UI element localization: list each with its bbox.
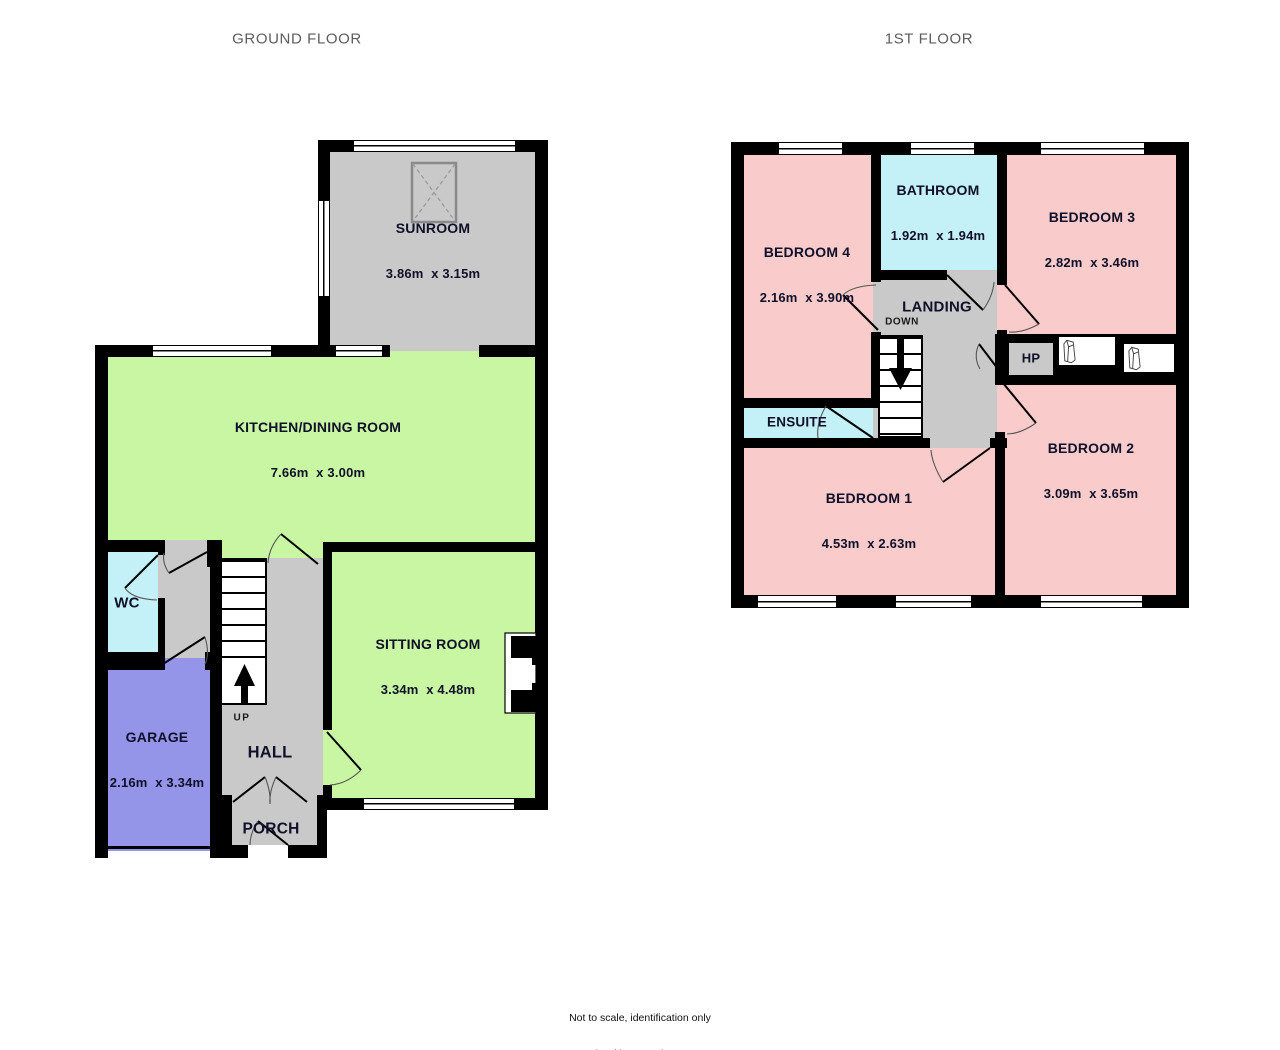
stair-steps bbox=[880, 337, 921, 436]
window bbox=[778, 142, 843, 155]
room-dims: 2.82m x 3.46m bbox=[1045, 255, 1140, 270]
stair-steps bbox=[222, 560, 265, 672]
wall-segment bbox=[323, 542, 548, 552]
room-name: BEDROOM 3 bbox=[1045, 210, 1140, 225]
garment-icon bbox=[1127, 345, 1142, 372]
room-label-bedroom2: BEDROOM 2 3.09m x 3.65m bbox=[1044, 411, 1139, 531]
room-name: PORCH bbox=[243, 822, 300, 837]
room-dims: 4.53m x 2.63m bbox=[822, 536, 917, 551]
room-dims: 3.34m x 4.48m bbox=[375, 682, 480, 697]
wall-segment bbox=[95, 652, 160, 670]
room-name: SITTING ROOM bbox=[375, 637, 480, 652]
window bbox=[1040, 595, 1143, 608]
room-label-sunroom: SUNROOM 3.86m x 3.15m bbox=[386, 191, 481, 311]
room-name: KITCHEN/DINING ROOM bbox=[235, 420, 401, 435]
wall-segment bbox=[95, 540, 163, 552]
disclaimer-line1: Not to scale, identification only bbox=[569, 1012, 711, 1024]
wall-segment bbox=[535, 140, 548, 810]
room-name: HALL bbox=[248, 746, 293, 761]
room-dims: 3.86m x 3.15m bbox=[386, 266, 481, 281]
room-name: WC bbox=[114, 596, 141, 611]
room-name: HP bbox=[1018, 351, 1045, 366]
wall-segment bbox=[997, 155, 1007, 285]
wall-segment bbox=[323, 542, 332, 730]
room-name: BEDROOM 1 bbox=[822, 491, 917, 506]
ground-floor-title: GROUND FLOOR bbox=[232, 31, 362, 48]
wall-segment bbox=[1176, 142, 1189, 608]
wall-segment bbox=[731, 438, 930, 448]
window bbox=[152, 345, 272, 357]
floorplan-page: GROUND FLOOR 1ST FLOOR bbox=[0, 0, 1280, 1050]
wall-segment bbox=[871, 155, 881, 282]
wall-segment bbox=[158, 540, 165, 555]
wall-segment bbox=[995, 432, 1005, 595]
room-name: LANDING bbox=[902, 300, 972, 315]
room-label-garage: GARAGE 2.16m x 3.34m bbox=[110, 700, 205, 820]
room-dims: 3.09m x 3.65m bbox=[1044, 486, 1139, 501]
wall-segment bbox=[479, 345, 535, 357]
room-label-bedroom3: BEDROOM 3 2.82m x 3.46m bbox=[1045, 180, 1140, 300]
wall-segment bbox=[731, 142, 744, 608]
ground-floor-plan: SUNROOM 3.86m x 3.15m KITCHEN/DINING ROO… bbox=[95, 140, 548, 858]
wardrobe bbox=[1057, 335, 1117, 367]
staircase-up bbox=[220, 558, 267, 705]
window bbox=[363, 798, 515, 810]
room-label-hall: HALL bbox=[248, 716, 293, 791]
room-label-hot-press: HP bbox=[1018, 321, 1045, 396]
room-label-bedroom1: BEDROOM 1 4.53m x 2.63m bbox=[822, 461, 917, 581]
room-dims: 1.92m x 1.94m bbox=[891, 228, 986, 243]
room-name: SUNROOM bbox=[386, 221, 481, 236]
window bbox=[1040, 142, 1145, 155]
room-label-landing: LANDING bbox=[902, 270, 972, 345]
window bbox=[353, 140, 516, 152]
first-floor-plan: BEDROOM 4 2.16m x 3.90m BATHROOM 1.92m x… bbox=[731, 142, 1189, 608]
room-label-ensuite: ENSUITE bbox=[767, 385, 827, 460]
room-name: ENSUITE bbox=[767, 415, 827, 430]
room-name: BEDROOM 2 bbox=[1044, 441, 1139, 456]
garage-door-line bbox=[108, 846, 210, 849]
room-dims: 2.16m x 3.90m bbox=[760, 290, 855, 305]
room-label-wc: WC bbox=[114, 566, 141, 641]
window bbox=[895, 595, 972, 608]
stairs-up-label: UP bbox=[234, 713, 251, 724]
room-name: GARAGE bbox=[110, 730, 205, 745]
room-dims: 2.16m x 3.34m bbox=[110, 775, 205, 790]
room-label-kitchen: KITCHEN/DINING ROOM 7.66m x 3.00m bbox=[235, 390, 401, 510]
stairs-down-label: DOWN bbox=[885, 317, 919, 328]
wall-segment bbox=[95, 345, 108, 858]
room-name: BEDROOM 4 bbox=[760, 245, 855, 260]
room-label-bedroom4: BEDROOM 4 2.16m x 3.90m bbox=[760, 215, 855, 335]
window bbox=[757, 595, 837, 608]
room-label-sitting: SITTING ROOM 3.34m x 4.48m bbox=[375, 607, 480, 727]
first-floor-title: 1ST FLOOR bbox=[885, 31, 973, 48]
room-name: BATHROOM bbox=[891, 183, 986, 198]
disclaimer: Not to scale, identification only Made w… bbox=[569, 988, 711, 1050]
room-dims: 7.66m x 3.00m bbox=[235, 465, 401, 480]
garment-icon bbox=[1062, 338, 1077, 365]
window bbox=[318, 200, 330, 297]
room-label-porch: PORCH bbox=[243, 792, 300, 867]
wardrobe bbox=[1122, 342, 1176, 374]
window bbox=[335, 345, 383, 357]
room-label-bathroom: BATHROOM 1.92m x 1.94m bbox=[891, 153, 986, 273]
staircase-down bbox=[878, 335, 923, 438]
